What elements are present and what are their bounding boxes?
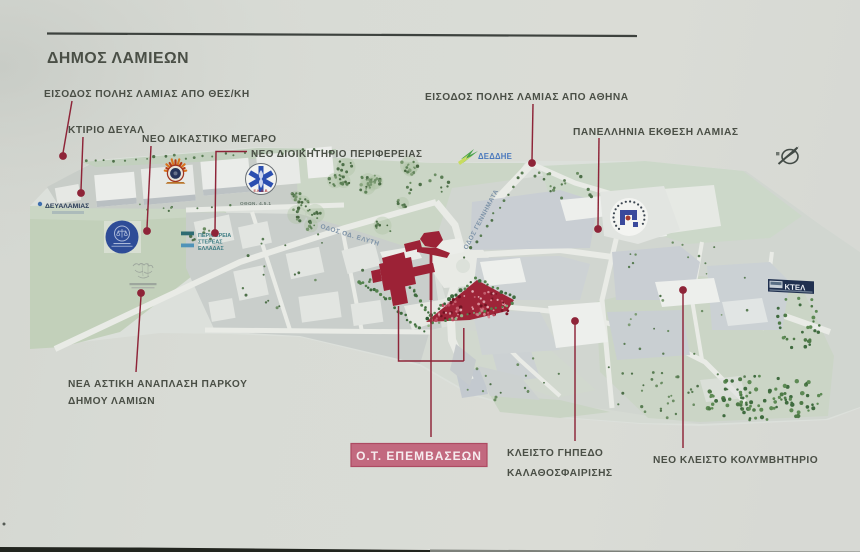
svg-text:ΝΕΟ ΔΙΟΙΚΗΤΗΡΙΟ ΠΕΡΙΦΕΡΕΙΑΣ: ΝΕΟ ΔΙΟΙΚΗΤΗΡΙΟ ΠΕΡΙΦΕΡΕΙΑΣ <box>251 149 422 160</box>
svg-text:ΕΙΣΟΔΟΣ ΠΟΛΗΣ ΛΑΜΙΑΣ ΑΠΟ ΘΕΣ/Κ: ΕΙΣΟΔΟΣ ΠΟΛΗΣ ΛΑΜΙΑΣ ΑΠΟ ΘΕΣ/ΚΗ <box>44 89 250 100</box>
svg-text:ΝΕΟ ΚΛΕΙΣΤΟ ΚΟΛΥΜΒΗΤΗΡΙΟ: ΝΕΟ ΚΛΕΙΣΤΟ ΚΟΛΥΜΒΗΤΗΡΙΟ <box>653 455 818 466</box>
svg-text:ΚΑΛΑΘΟΣΦΑΙΡΙΣΗΣ: ΚΑΛΑΘΟΣΦΑΙΡΙΣΗΣ <box>507 468 613 479</box>
svg-text:ΠΑΝΕΛΛΗΝΙΑ ΕΚΘΕΣΗ ΛΑΜΙΑΣ: ΠΑΝΕΛΛΗΝΙΑ ΕΚΘΕΣΗ ΛΑΜΙΑΣ <box>573 127 738 138</box>
svg-text:ΚΤΙΡΙΟ ΔΕΥΑΛ: ΚΤΙΡΙΟ ΔΕΥΑΛ <box>68 125 145 136</box>
svg-text:ΔΗΜΟΥ ΛΑΜΙΩΝ: ΔΗΜΟΥ ΛΑΜΙΩΝ <box>68 396 155 407</box>
svg-text:ΝΕΑ ΑΣΤΙΚΗ ΑΝΑΠΛΑΣΗ ΠΑΡΚΟΥ: ΝΕΑ ΑΣΤΙΚΗ ΑΝΑΠΛΑΣΗ ΠΑΡΚΟΥ <box>68 379 247 390</box>
svg-text:ΣΤΕΡΕΑΣ: ΣΤΕΡΕΑΣ <box>198 240 223 246</box>
svg-text:Ε.Κ.Α.Β.: Ε.Κ.Α.Β. <box>254 189 269 193</box>
svg-text:ΟΘΩΝ. 4.5.1: ΟΘΩΝ. 4.5.1 <box>240 201 271 206</box>
svg-text:ΔΕΥΑΛΑΜΙΑΣ: ΔΕΥΑΛΑΜΙΑΣ <box>45 203 89 210</box>
svg-text:ΝΕΟ ΔΙΚΑΣΤΙΚΟ ΜΕΓΑΡΟ: ΝΕΟ ΔΙΚΑΣΤΙΚΟ ΜΕΓΑΡΟ <box>142 134 277 145</box>
svg-text:ΔΕΔΔΗΕ: ΔΕΔΔΗΕ <box>478 152 512 161</box>
svg-text:ΕΛΛΑΔΑΣ: ΕΛΛΑΔΑΣ <box>198 246 224 252</box>
svg-text:ΕΙΣΟΔΟΣ ΠΟΛΗΣ ΛΑΜΙΑΣ ΑΠΟ ΑΘΗΝΑ: ΕΙΣΟΔΟΣ ΠΟΛΗΣ ΛΑΜΙΑΣ ΑΠΟ ΑΘΗΝΑ <box>425 92 629 103</box>
svg-text:ΔΗΜΟΣ ΛΑΜΙΕΩΝ: ΔΗΜΟΣ ΛΑΜΙΕΩΝ <box>47 50 189 67</box>
svg-text:Ο.Τ. ΕΠΕΜΒΑΣΕΩΝ: Ο.Τ. ΕΠΕΜΒΑΣΕΩΝ <box>356 449 482 463</box>
svg-text:ΚΛΕΙΣΤΟ ΓΗΠΕΔΟ: ΚΛΕΙΣΤΟ ΓΗΠΕΔΟ <box>507 448 603 459</box>
